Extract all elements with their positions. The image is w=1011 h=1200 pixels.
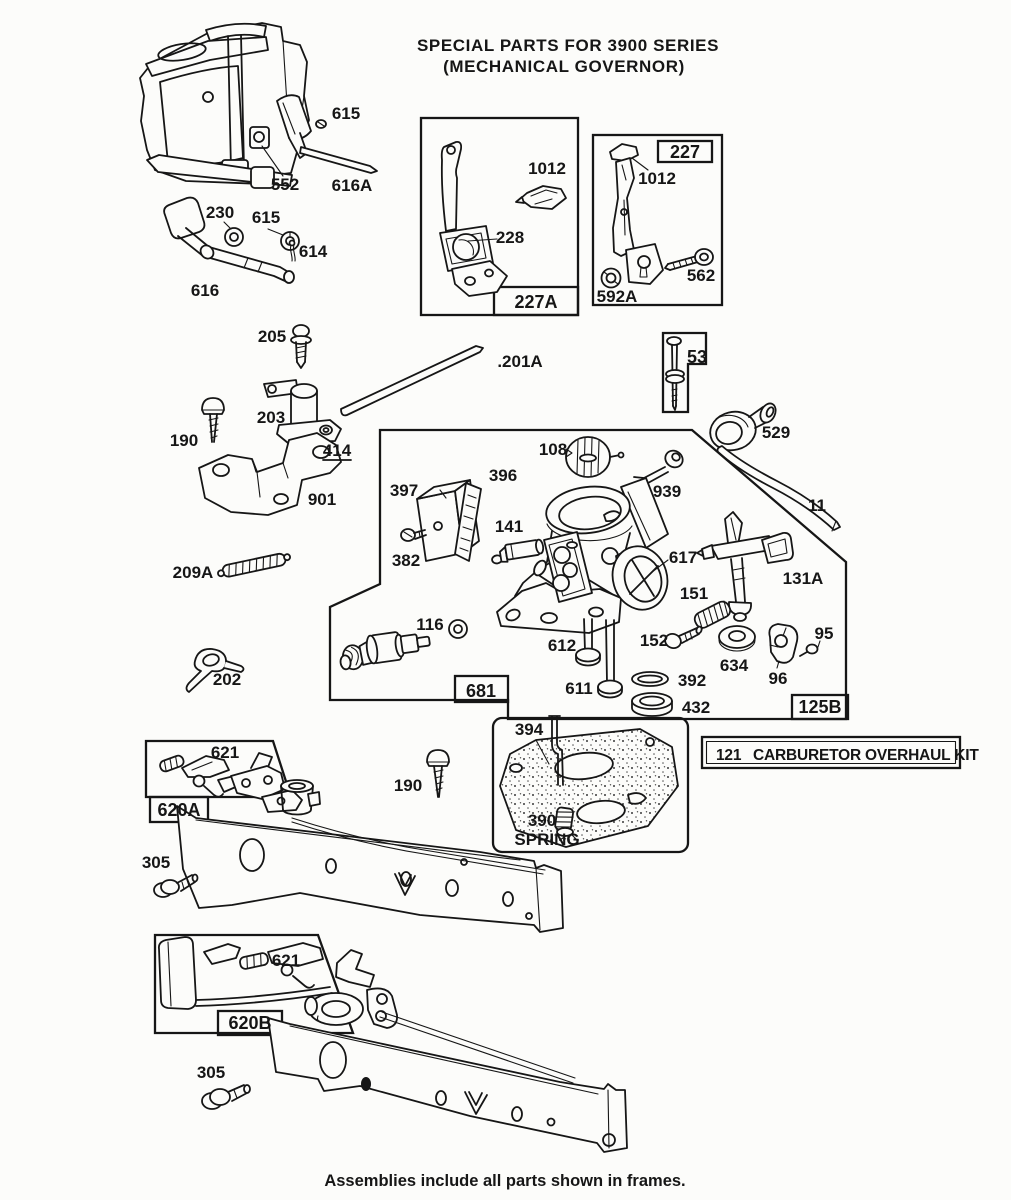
- part-label-1012-227: 1012: [638, 169, 676, 188]
- oring-392-drawing: [632, 672, 668, 686]
- overhaul-kit-label: CARBURETOR OVERHAUL KIT: [753, 747, 979, 764]
- part-label-95: 95: [815, 624, 834, 643]
- part-label-552: 552: [271, 175, 299, 194]
- part-label-305b: 305: [197, 1063, 225, 1082]
- part-label-108: 108: [539, 440, 567, 459]
- pin-141-drawing: [490, 539, 545, 564]
- bolt-53-drawing: [666, 337, 684, 410]
- frame-label-125b: 125B: [798, 697, 841, 717]
- part-label-617: 617: [669, 548, 697, 567]
- bolt-152-drawing: [663, 626, 702, 650]
- screw-190-mid-drawing: [427, 750, 449, 797]
- frame-label-53: 53: [687, 347, 707, 367]
- pump-body-397-drawing: [417, 480, 481, 561]
- part-label-397: 397: [390, 481, 418, 500]
- spring-151-drawing: [692, 599, 732, 630]
- part-label-151: 151: [680, 584, 708, 603]
- part-label-152: 152: [640, 631, 668, 650]
- control-plate-620a-drawing: [177, 806, 563, 932]
- part-label-562: 562: [687, 266, 715, 285]
- frame-label-227: 227: [670, 142, 700, 162]
- detent-96-drawing: [769, 624, 797, 668]
- part-label-190-mid: 190: [394, 776, 422, 795]
- governor-rod-201a-drawing: [341, 346, 483, 415]
- part-label-621b: 621: [272, 951, 300, 970]
- needle-valve-116-drawing: [337, 628, 431, 671]
- part-label-390: 390: [528, 811, 556, 830]
- part-label-209a: 209A: [173, 563, 214, 582]
- frame-label-620a: 620A: [157, 800, 200, 820]
- overhaul-kit-number: 121: [716, 747, 742, 764]
- page-title-line1: SPECIAL PARTS FOR 3900 SERIES: [417, 36, 719, 55]
- part-label-616: 616: [191, 281, 219, 300]
- frame-label-227a: 227A: [514, 292, 557, 312]
- control-lever-621b-drawing: [204, 943, 323, 988]
- part-label-611: 611: [565, 679, 592, 698]
- control-plate-620b-drawing: [268, 1018, 627, 1152]
- part-label-392: 392: [678, 671, 706, 690]
- part-label-116: 116: [416, 615, 443, 634]
- part-label-615-engine: 615: [332, 104, 360, 123]
- part-label-396: 396: [489, 466, 517, 485]
- part-label-901: 901: [308, 490, 336, 509]
- linkage-620a-drawing: [231, 753, 320, 815]
- pin-614-drawing: [290, 241, 296, 262]
- choke-plate-108-drawing: [566, 437, 624, 477]
- bolt-305b-drawing: [202, 1085, 250, 1109]
- parts-diagram-page: SPECIAL PARTS FOR 3900 SERIES (MECHANICA…: [0, 0, 1011, 1200]
- part-label-615-washer: 615: [252, 208, 280, 227]
- part-label-612: 612: [548, 636, 576, 655]
- part-label-634: 634: [720, 656, 749, 675]
- part-label-621a: 621: [211, 743, 239, 762]
- washer-615-drawing: [268, 229, 299, 250]
- link-rod-616a-drawing: [300, 147, 377, 173]
- part-label-96: 96: [769, 669, 788, 688]
- tube-611-drawing: [598, 620, 622, 698]
- spring-annotation: SPRING: [514, 830, 579, 849]
- part-label-382: 382: [392, 551, 420, 570]
- part-label-131a: 131A: [783, 569, 824, 588]
- part-label-190-top: 190: [170, 431, 198, 450]
- part-label-414: 414: [323, 441, 352, 460]
- lever-228-drawing: [440, 142, 507, 296]
- casing-clamp-1012-drawing: [516, 186, 566, 209]
- packing-ring-116-drawing: [449, 620, 467, 638]
- lever-1012-drawing: [610, 144, 663, 284]
- screw-190-top-drawing: [202, 398, 224, 442]
- washer-634-drawing: [719, 626, 755, 651]
- bolt-205-drawing: [291, 325, 311, 368]
- frame-label-620b: 620B: [228, 1013, 271, 1033]
- part-label-394: 394: [515, 720, 544, 739]
- screw-615-drawing: [316, 120, 326, 128]
- screw-95-drawing: [800, 641, 820, 656]
- governor-crank-131a-drawing: [697, 512, 793, 621]
- page-title-line2: (MECHANICAL GOVERNOR): [443, 57, 685, 76]
- part-label-939: 939: [653, 482, 681, 501]
- part-label-1012-227a: 1012: [528, 159, 566, 178]
- part-label-201a: .201A: [497, 352, 542, 371]
- frame-label-681: 681: [466, 681, 496, 701]
- part-label-230: 230: [206, 203, 234, 222]
- part-label-205: 205: [258, 327, 286, 346]
- seal-ring-432-drawing: [632, 693, 672, 716]
- part-label-141: 141: [495, 517, 523, 536]
- part-label-305a: 305: [142, 853, 170, 872]
- footer-caption: Assemblies include all parts shown in fr…: [324, 1172, 685, 1190]
- nut-592a-drawing: [602, 269, 621, 288]
- part-label-203: 203: [257, 408, 285, 427]
- spring-209a-drawing: [217, 552, 292, 579]
- parts-diagram-canvas: SPECIAL PARTS FOR 3900 SERIES (MECHANICA…: [0, 0, 1011, 1200]
- overhaul-kit-box: 121 CARBURETOR OVERHAUL KIT: [702, 737, 979, 768]
- part-label-616a: 616A: [332, 176, 373, 195]
- part-label-529: 529: [762, 423, 790, 442]
- part-label-614: 614: [299, 242, 328, 261]
- part-label-432: 432: [682, 698, 710, 717]
- nut-230-drawing: [224, 222, 243, 246]
- part-label-228: 228: [496, 228, 524, 247]
- part-label-202: 202: [213, 670, 241, 689]
- part-label-592a: 592A: [597, 287, 638, 306]
- part-label-11: 11: [808, 496, 826, 515]
